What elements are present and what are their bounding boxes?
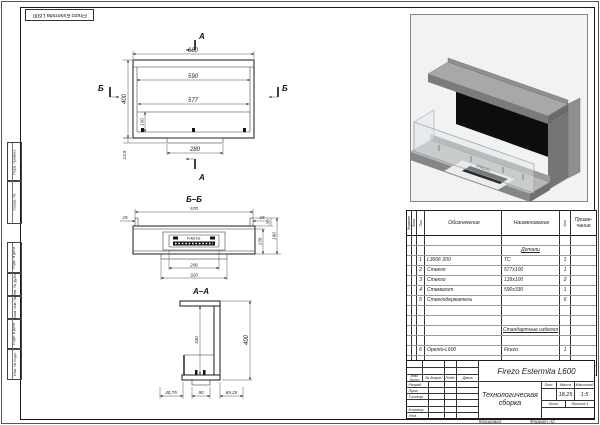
- tb-sheet-label: Лист: [542, 401, 566, 408]
- margin-stamp-inv-dubl: Инв. № дубл.: [7, 272, 22, 297]
- spec-row-empty: [407, 316, 596, 326]
- svg-text:90: 90: [198, 390, 204, 395]
- svg-text:30: 30: [266, 219, 271, 225]
- spec-row: 2Стекло577х1001: [407, 266, 596, 276]
- aa-dimensions: 330 400 40,75 90 69,25: [160, 301, 252, 399]
- tb-hdr-doc: № докум.: [423, 375, 445, 382]
- svg-text:А: А: [198, 173, 205, 182]
- col-format: Формат: [407, 216, 411, 230]
- svg-text:680: 680: [188, 48, 199, 54]
- margin-stamp-vzam-inv: Взам. инв. №: [7, 295, 22, 320]
- col-name: Наименование: [514, 220, 550, 226]
- col-note: Приме-чание: [575, 217, 593, 229]
- spec-section-details: Детали: [407, 246, 596, 256]
- section-bb-title: Б–Б: [186, 195, 202, 204]
- spec-table-header: Формат Зона Поз. Обозначение Наименовани…: [407, 211, 596, 236]
- section-aa-title: А–А: [192, 287, 209, 296]
- spec-row: 6Opento-L600Firezo1: [407, 346, 596, 356]
- svg-text:570: 570: [190, 206, 198, 211]
- section-mark-a-bottom: А: [186, 159, 205, 182]
- spec-row: 3Стекло139х1002: [407, 276, 596, 286]
- tb-scale-value: 1:5: [575, 389, 594, 401]
- svg-text:А: А: [198, 32, 205, 41]
- tb-designation: Firezo Estermita L600: [479, 361, 594, 382]
- isometric-render: FIREZO: [410, 14, 588, 202]
- svg-text:577: 577: [188, 98, 199, 104]
- spec-row-empty: [407, 236, 596, 246]
- col-qty: Кол.: [563, 219, 567, 226]
- bb-burner-logo: FIREZO: [187, 237, 201, 241]
- tb-hdr-podp: Подп.: [445, 375, 457, 382]
- margin-stamp-podp-data-1: Подп. и дата: [7, 242, 22, 274]
- svg-text:100: 100: [140, 118, 145, 126]
- svg-text:69,25: 69,25: [226, 390, 238, 395]
- tb-scale-label: Масштаб: [575, 382, 594, 389]
- spec-section-standard: Стандартные изделия: [407, 326, 596, 336]
- col-pos: Поз.: [419, 219, 423, 226]
- spec-row-empty: [407, 306, 596, 316]
- tb-mass-value: 18,25: [557, 389, 575, 401]
- top-rotated-stamp: Firezo Estermita L600: [25, 9, 94, 21]
- svg-text:400: 400: [244, 334, 250, 345]
- svg-text:160: 160: [272, 232, 277, 240]
- isometric-svg: FIREZO: [410, 14, 588, 202]
- margin-stamp-inv-podl: Инв. № подл.: [7, 348, 22, 380]
- top-stamp-text: Firezo Estermita L600: [33, 12, 87, 18]
- footer-format: Формат А2: [530, 419, 555, 424]
- svg-text:15: 15: [259, 215, 265, 220]
- spec-row: 1L300F 200ТС1: [407, 256, 596, 266]
- svg-text:15: 15: [122, 215, 128, 220]
- tb-doc-title: Технологическая сборка: [479, 382, 542, 419]
- plan-view: А А Б Б: [95, 28, 307, 190]
- section-bb-view: Б–Б FIREZO 570 15 15 30: [95, 192, 307, 292]
- margin-stamp-perv-primen: Перв. примен.: [7, 142, 22, 182]
- svg-text:13,5: 13,5: [122, 150, 127, 159]
- bb-outline: FIREZO: [133, 218, 255, 259]
- section-mark-b-left: Б: [98, 84, 119, 97]
- svg-text:400: 400: [122, 93, 128, 104]
- spec-row-empty: [407, 336, 596, 346]
- svg-text:590: 590: [188, 74, 199, 80]
- tb-mass-label: Масса: [557, 382, 575, 389]
- spec-row: 5Стеклодержатель6: [407, 296, 596, 306]
- col-designation: Обозначение: [448, 220, 480, 226]
- tb-sheets: Листов 1: [566, 401, 594, 408]
- section-mark-b-right: Б: [269, 84, 288, 97]
- col-zone: Зона: [412, 219, 416, 227]
- svg-text:206: 206: [189, 263, 198, 268]
- margin-stamp-sprav-no: Справ. №: [7, 180, 22, 224]
- spec-row: 4Стемалит590х3301: [407, 286, 596, 296]
- svg-text:330: 330: [194, 336, 199, 344]
- margin-stamp-podp-data-2: Подп. и дата: [7, 318, 22, 350]
- tb-hdr-data: Дата: [457, 375, 479, 382]
- drawing-sheet: Firezo Estermita L600 Перв. примен. Спра…: [0, 0, 600, 425]
- svg-text:Б: Б: [98, 84, 104, 93]
- svg-text:40,75: 40,75: [165, 390, 177, 395]
- svg-text:139: 139: [258, 237, 263, 245]
- tb-role-utv: Утв.: [407, 413, 429, 419]
- svg-text:320: 320: [190, 273, 198, 278]
- tb-hdr-izm-list: Изм. Лист: [407, 375, 423, 382]
- svg-text:280: 280: [189, 147, 201, 153]
- title-block: Изм. Лист № докум. Подп. Дата Разраб. Пр…: [406, 360, 595, 419]
- svg-text:Б: Б: [282, 84, 288, 93]
- tb-lit-label: Лит.: [542, 382, 557, 389]
- spec-table: Формат Зона Поз. Обозначение Наименовани…: [406, 210, 597, 376]
- section-aa-view: А–А 330 400 40,75 90: [140, 283, 300, 418]
- footer-copied: Копировал: [455, 419, 525, 424]
